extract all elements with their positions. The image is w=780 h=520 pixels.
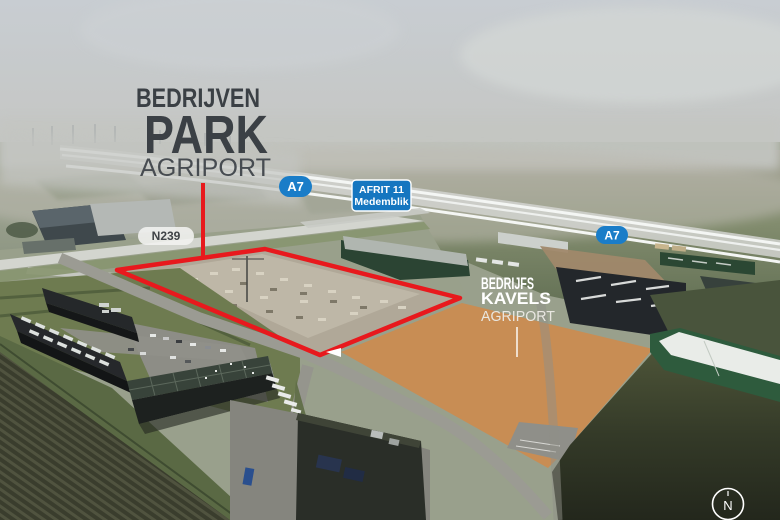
svg-text:AGRIPORT: AGRIPORT xyxy=(481,308,555,325)
svg-text:KAVELS: KAVELS xyxy=(481,289,551,308)
svg-text:AGRIPORT: AGRIPORT xyxy=(140,154,271,182)
svg-text:AFRIT 11: AFRIT 11 xyxy=(359,184,404,196)
svg-text:N239: N239 xyxy=(152,229,181,243)
svg-text:N: N xyxy=(723,498,732,513)
svg-text:Medemblik: Medemblik xyxy=(354,196,408,208)
svg-text:A7: A7 xyxy=(604,229,620,243)
svg-text:A7: A7 xyxy=(287,179,304,194)
